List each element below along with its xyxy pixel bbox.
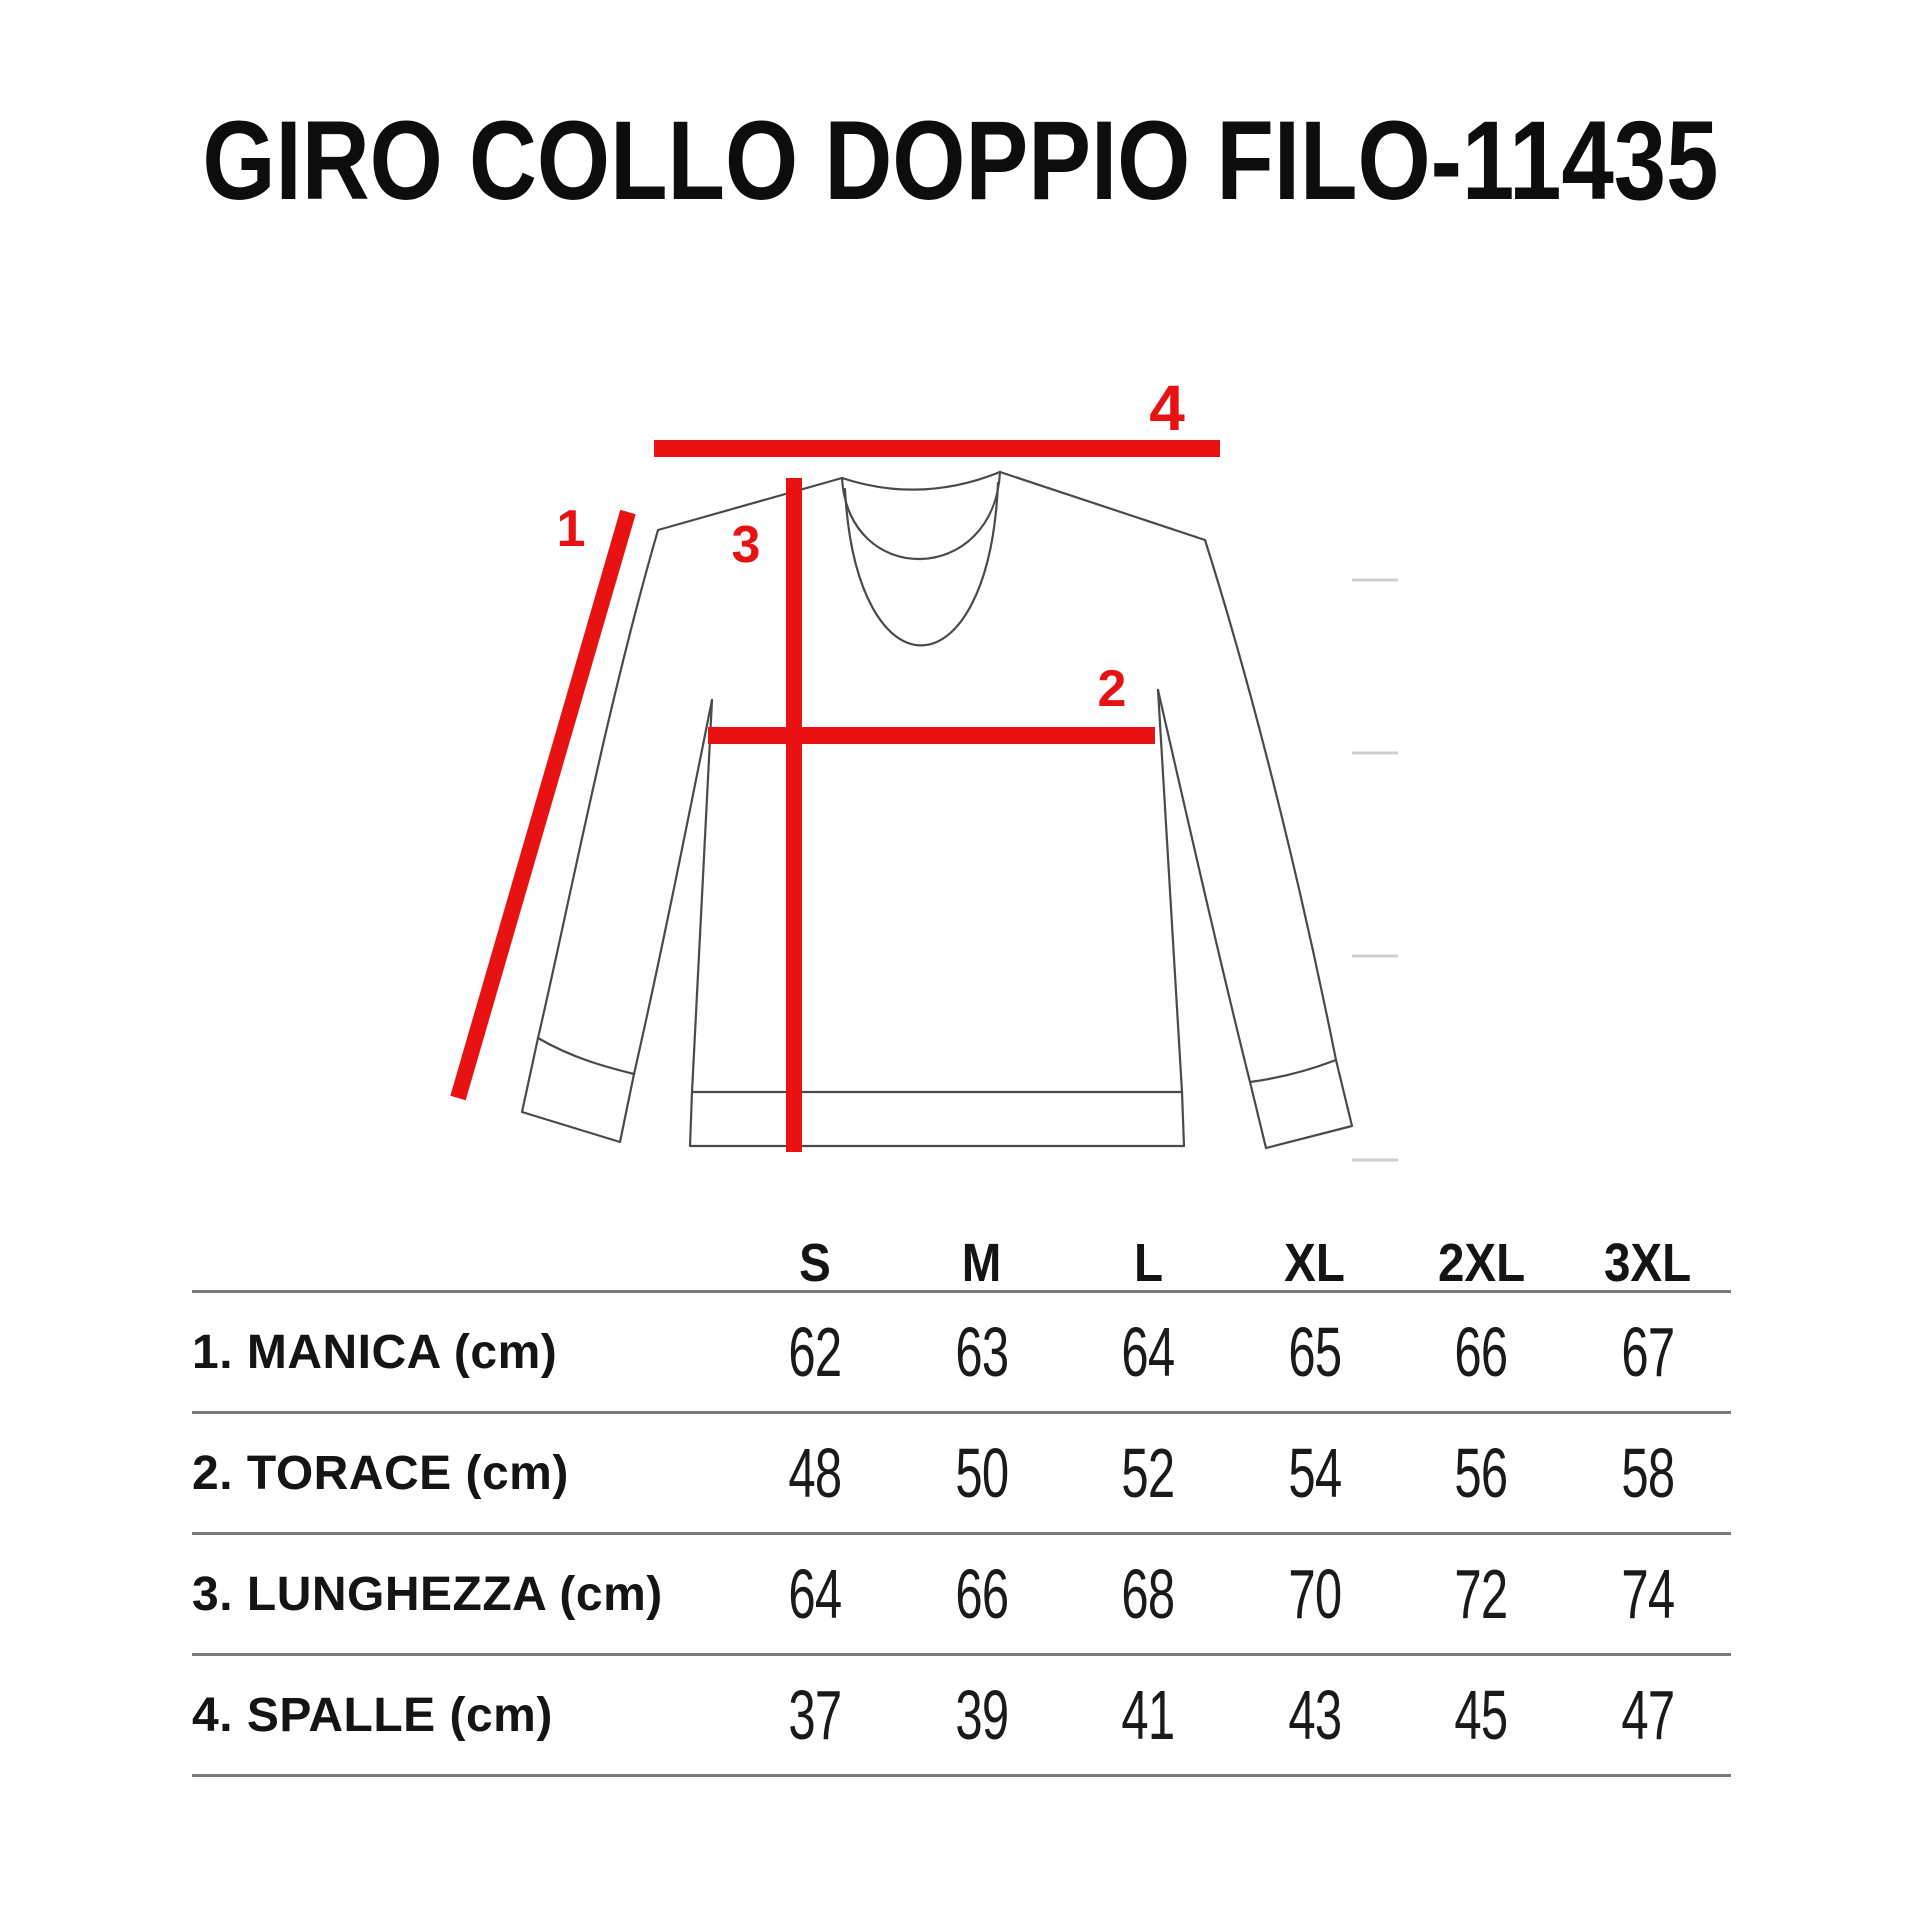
value-text: 43 (1288, 1675, 1341, 1755)
value-text: 70 (1288, 1554, 1341, 1634)
row-label: 3. LUNGHEZZA (cm) (192, 1567, 732, 1622)
table-row-3: 3. LUNGHEZZA (cm)646668707274 (192, 1532, 1731, 1653)
value-text: 54 (1288, 1433, 1341, 1513)
row-label: 1. MANICA (cm) (192, 1325, 732, 1380)
left-cuff-top (538, 1038, 634, 1074)
value-text: 52 (1122, 1433, 1175, 1513)
size-col-header-xl: XL (1232, 1232, 1399, 1294)
value-text: 47 (1621, 1675, 1674, 1755)
value-cell: 37 (732, 1675, 899, 1755)
collar-outer-curve (845, 483, 998, 645)
length-measure-label-3: 3 (732, 516, 761, 574)
value-text: 41 (1122, 1675, 1175, 1755)
value-text: 45 (1455, 1675, 1508, 1755)
measurement-lines: 4 1 3 2 (458, 372, 1220, 1152)
value-cell: 58 (1565, 1433, 1732, 1513)
value-cell: 48 (732, 1433, 899, 1513)
sweatshirt-outline (522, 472, 1352, 1148)
left-cuff (522, 1038, 634, 1142)
value-cell: 64 (732, 1554, 899, 1634)
value-text: 72 (1455, 1554, 1508, 1634)
value-cell: 45 (1398, 1675, 1565, 1755)
value-text: 62 (789, 1312, 842, 1392)
size-col-header-text: XL (1284, 1232, 1345, 1294)
value-cell: 70 (1232, 1554, 1399, 1634)
shoulder-measure-line-4 (654, 440, 1220, 457)
value-cell: 56 (1398, 1433, 1565, 1513)
size-col-header-s: S (732, 1232, 899, 1294)
size-header-row: SMLXL2XL3XL (192, 1232, 1731, 1290)
size-col-header-text: S (799, 1232, 831, 1294)
value-cell: 63 (899, 1312, 1066, 1392)
shoulder-measure-label-4: 4 (1149, 372, 1185, 444)
value-text: 48 (789, 1433, 842, 1513)
right-shoulder-seam (1000, 472, 1205, 540)
size-col-header-text: M (962, 1232, 1002, 1294)
size-col-header-m: M (899, 1232, 1066, 1294)
value-cell: 66 (1398, 1312, 1565, 1392)
left-sleeve-inner-edge (634, 700, 712, 1074)
value-cell: 52 (1065, 1433, 1232, 1513)
row-label: 4. SPALLE (cm) (192, 1688, 732, 1743)
right-cuff-top (1250, 1060, 1336, 1082)
hem-band-bottom (690, 1092, 1184, 1146)
value-text: 74 (1621, 1554, 1674, 1634)
value-cell: 41 (1065, 1675, 1232, 1755)
value-cell: 66 (899, 1554, 1066, 1634)
value-cell: 54 (1232, 1433, 1399, 1513)
table-row-2: 2. TORACE (cm)485052545658 (192, 1411, 1731, 1532)
right-cuff (1250, 1060, 1352, 1148)
value-text: 58 (1621, 1433, 1674, 1513)
value-text: 66 (1455, 1312, 1508, 1392)
size-col-header-text: L (1134, 1232, 1163, 1294)
value-text: 63 (955, 1312, 1008, 1392)
value-text: 37 (789, 1675, 842, 1755)
size-col-header-text: 3XL (1604, 1232, 1691, 1294)
value-cell: 65 (1232, 1312, 1399, 1392)
table-row-1: 1. MANICA (cm)626364656667 (192, 1290, 1731, 1411)
sleeve-measure-line-1 (458, 512, 628, 1098)
value-text: 64 (789, 1554, 842, 1634)
left-body-seam (692, 700, 712, 1092)
value-cell: 72 (1398, 1554, 1565, 1634)
length-measure-line-3 (786, 478, 802, 1152)
value-text: 67 (1621, 1312, 1674, 1392)
size-col-header-l: L (1065, 1232, 1232, 1294)
value-text: 68 (1122, 1554, 1175, 1634)
right-sleeve-inner-edge (1158, 690, 1250, 1082)
chest-measure-line-2 (708, 727, 1155, 744)
row-label: 2. TORACE (cm) (192, 1446, 732, 1501)
size-chart-page: GIRO COLLO DOPPIO FILO-11435 (0, 0, 1920, 1920)
side-tick-marks (1352, 580, 1398, 1160)
value-text: 50 (955, 1433, 1008, 1513)
value-text: 66 (955, 1554, 1008, 1634)
size-table: SMLXL2XL3XL 1. MANICA (cm)6263646566672.… (192, 1232, 1731, 1777)
value-cell: 64 (1065, 1312, 1232, 1392)
value-cell: 62 (732, 1312, 899, 1392)
value-cell: 50 (899, 1433, 1066, 1513)
value-cell: 74 (1565, 1554, 1732, 1634)
value-text: 65 (1288, 1312, 1341, 1392)
value-cell: 43 (1232, 1675, 1399, 1755)
value-text: 39 (955, 1675, 1008, 1755)
back-neck-line (842, 472, 1000, 490)
value-cell: 39 (899, 1675, 1066, 1755)
value-cell: 67 (1565, 1312, 1732, 1392)
value-cell: 47 (1565, 1675, 1732, 1755)
size-table-body: 1. MANICA (cm)6263646566672. TORACE (cm)… (192, 1290, 1731, 1774)
right-body-seam (1158, 690, 1182, 1092)
size-col-header-text: 2XL (1438, 1232, 1525, 1294)
table-row-4: 4. SPALLE (cm)373941434547 (192, 1653, 1731, 1774)
size-col-header-3xl: 3XL (1565, 1232, 1732, 1294)
value-text: 64 (1122, 1312, 1175, 1392)
sleeve-measure-label-1: 1 (557, 500, 586, 558)
size-col-header-2xl: 2XL (1398, 1232, 1565, 1294)
value-text: 56 (1455, 1433, 1508, 1513)
value-cell: 68 (1065, 1554, 1232, 1634)
chest-measure-label-2: 2 (1098, 660, 1127, 718)
